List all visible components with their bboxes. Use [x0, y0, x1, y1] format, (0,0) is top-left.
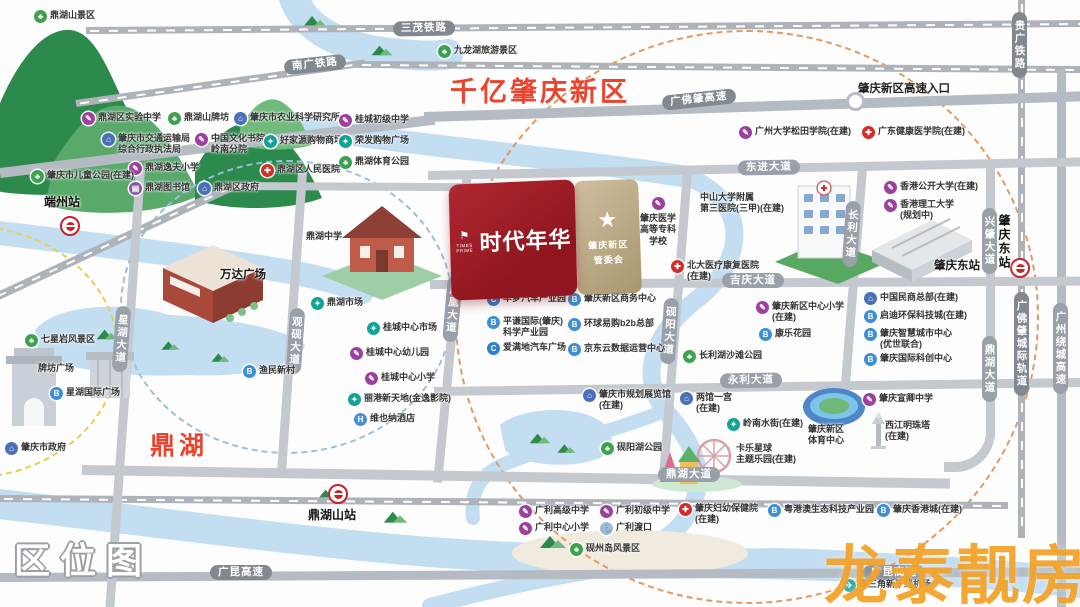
poi-school-58[interactable]: ✎广利高级中学 [519, 505, 589, 518]
poi-label: 九龙湖旅游景区 [454, 45, 517, 56]
hospital-icon: ✚ [671, 260, 684, 273]
location-map: 千亿肇庆新区 鼎湖 肇庆新区高速入口 区位图 ★ 肇庆新区 管委会 ⚑ TIME… [0, 0, 1080, 607]
poi-label: 肇庆市儿童公园(在建) [47, 170, 134, 181]
times-prime-logo: ⚑ TIMES PRIME [454, 231, 475, 254]
flag-icon: ⚑ [459, 231, 469, 242]
dinghushan-station-label: 鼎湖山站 [308, 506, 356, 523]
poi-shop-48[interactable]: ✦岭南水街(在建) [727, 418, 803, 431]
poi-car-42[interactable]: C爱满地汽车广场 [487, 342, 566, 355]
poi-gov-45[interactable]: ⌂肇庆市规划展览馆(在建) [583, 389, 671, 412]
park-icon: ♣ [339, 156, 352, 169]
school-icon: ✎ [884, 181, 897, 194]
poi-school-11[interactable]: ✎鼎湖逸夫小学 [129, 162, 199, 175]
poi-label: 肇庆智慧城市中心(优世联合) [880, 328, 952, 351]
poi-label: 牌坊广场 [38, 363, 74, 374]
shop-icon: ✦ [264, 135, 277, 148]
school-icon: ✎ [339, 114, 352, 127]
poi-business-40[interactable]: B平谦国际(肇庆)科学产业园 [487, 316, 563, 339]
school-icon: ✎ [652, 197, 665, 210]
poi-shop-9[interactable]: ✦荣发购物广场 [339, 135, 409, 148]
poi-school-59[interactable]: ✎广利初级中学 [600, 505, 670, 518]
poi-library-13[interactable]: ▤鼎湖图书馆 [129, 182, 190, 195]
poi-park-44[interactable]: ♣长利湖沙滩公园 [683, 350, 762, 363]
poi-label: 鼎湖区实验中学 [98, 112, 161, 123]
poi-business-64[interactable]: B粤港澳生态科技产业园 [768, 504, 874, 517]
label-dinghu: 鼎湖大道 [658, 467, 720, 482]
duanzhou-station-label: 端州站 [44, 193, 80, 210]
label-guangkun-west: 广昆高速 [210, 565, 272, 580]
business-icon: B [243, 365, 256, 378]
poi-label-20[interactable]: 中山大学附属第三医院(三甲)(在建) [700, 192, 784, 215]
poi-label: 鼎湖市场 [327, 297, 363, 308]
poi-label: 广利初级中学 [616, 505, 670, 516]
poi-hospital-21[interactable]: ✚北大医疗康复医院(在建) [671, 260, 759, 283]
poi-label: 香港公开大学(在建) [900, 181, 978, 192]
hotel-icon: H [354, 413, 367, 426]
poi-label: 长利湖沙滩公园 [699, 350, 762, 361]
property-banner[interactable]: ⚑ TIMES PRIME 时代年华 [449, 179, 578, 300]
poi-business-35[interactable]: B星湖国际广场 [50, 387, 120, 400]
poi-ferry-61[interactable]: ⚓广利渡口 [600, 522, 652, 535]
shop-icon: ✦ [727, 418, 740, 431]
poi-label: 渔民新村 [259, 365, 295, 376]
poi-label-50[interactable]: 肇庆新区体育中心 [808, 424, 844, 447]
poi-label: 广州大学松田学院(在建) [755, 126, 851, 137]
watermark: 龙泰靓房 [824, 525, 1080, 607]
poi-label-49[interactable]: 卡乐星球主题乐园(在建) [736, 443, 796, 466]
poi-school-28[interactable]: ✎桂城中心幼儿园 [350, 347, 429, 360]
poi-label: 砚阳湖公园 [617, 442, 662, 453]
poi-label: 中国民商总部(在建) [880, 292, 958, 303]
poi-label: 粤港澳生态科技产业园 [784, 504, 874, 515]
shop-icon: ✦ [348, 393, 361, 406]
poi-school-51[interactable]: ✎肇庆宣卿中学 [863, 393, 933, 406]
poi-school-16[interactable]: ✎广州大学松田学院(在建) [739, 126, 851, 139]
poi-label: 香港理工大学(规划中) [900, 199, 954, 222]
shop-icon: ✦ [311, 297, 324, 310]
school-icon: ✎ [884, 199, 897, 212]
dinghu-district-label: 鼎湖 [150, 426, 208, 462]
poi-label: 维也纳酒店 [370, 413, 415, 424]
business-icon: B [864, 328, 877, 341]
gov-icon: ⌂ [583, 389, 596, 402]
property-name: 时代年华 [479, 221, 572, 257]
poi-business-41[interactable]: B环球易购b2b总部 [568, 318, 654, 331]
times-prime-site[interactable]: ★ 肇庆新区 管委会 ⚑ TIMES PRIME 时代年华 [450, 176, 650, 304]
poi-hospital-63[interactable]: ✚肇庆妇幼保健院(在建) [679, 503, 758, 526]
poi-school-60[interactable]: ✎广利中心小学 [519, 522, 589, 535]
poi-school-2[interactable]: ✎鼎湖区实验中学 [82, 112, 161, 125]
poi-label: 北大医疗康复医院(在建) [687, 260, 759, 283]
poi-shop-8[interactable]: ✦好家源购物商场 [264, 135, 343, 148]
poi-school-22[interactable]: ✎肇庆新区中心小学(在建) [756, 301, 844, 324]
poi-park-0[interactable]: ♣鼎湖山景区 [34, 10, 95, 23]
poi-label: 肇庆妇幼保健院(在建) [695, 503, 758, 526]
poi-business-55[interactable]: B肇庆智慧城市中心(优世联合) [864, 328, 952, 351]
poi-school-29[interactable]: ✎桂城中心小学 [365, 372, 435, 385]
logo-text: TIMES PRIME [455, 243, 475, 254]
poi-label: 桂城中心幼儿园 [366, 347, 429, 358]
poi-gov-36[interactable]: ⌂肇庆市政府 [5, 442, 66, 455]
poi-label: 星湖国际广场 [66, 387, 120, 398]
park-icon: ♣ [25, 334, 38, 347]
business-icon: B [864, 353, 877, 366]
poi-label: 肇庆市交通运输局综合行政执法局 [118, 133, 190, 156]
poi-label: 启迪环保科技城(在建) [880, 310, 967, 321]
label-xingzhao: 兴肇大道 [982, 208, 997, 274]
business-icon: B [568, 343, 581, 356]
gov-icon: ⌂ [234, 112, 247, 125]
business-icon: B [768, 504, 781, 517]
poi-hospital-17[interactable]: ✚广东健康医学院(在建) [862, 126, 965, 139]
school-icon: ✎ [519, 522, 532, 535]
school-icon: ✎ [756, 301, 769, 314]
poi-label: 肇庆市农业科学研究所 [250, 112, 340, 123]
poi-label: 广东健康医学院(在建) [878, 126, 965, 137]
school-icon: ✎ [195, 133, 208, 146]
poi-label: 鼎湖山牌坊 [184, 112, 229, 123]
poi-label: 京东云数据运营中心 [584, 343, 665, 354]
label-gzring: 广州绕城高速 [1053, 303, 1068, 394]
poi-school-19[interactable]: ✎香港理工大学(规划中) [884, 199, 954, 222]
poi-school-5[interactable]: ✎桂城初级中学 [339, 114, 409, 127]
poi-business-32[interactable]: B渔民新村 [243, 365, 295, 378]
park-icon: ♣ [34, 10, 47, 23]
poi-business-54[interactable]: B启迪环保科技城(在建) [864, 310, 967, 323]
poi-label: 肇庆东站 [934, 259, 980, 273]
poi-label-34[interactable]: 牌坊广场 [38, 363, 74, 374]
mid-connector-road [228, 182, 476, 191]
poi-label: 肇庆宣卿中学 [879, 393, 933, 404]
poi-shop-27[interactable]: ✦桂城中心市场 [367, 322, 437, 335]
label-yongli: 永利大道 [720, 372, 782, 388]
poi-label: 爱满地汽车广场 [503, 342, 566, 353]
poi-label: 万达广场 [220, 268, 266, 282]
business-icon: B [50, 387, 63, 400]
poi-label-52[interactable]: 西江明珠塔(在建) [885, 420, 930, 443]
poi-label: 好家源购物商场 [280, 135, 343, 146]
poi-label-57[interactable]: 肇庆东站 [934, 259, 980, 273]
poi-school-7[interactable]: ✎中国文化书院岭南分院 [195, 133, 265, 156]
poi-label: 鼎湖山景区 [50, 10, 95, 21]
school-icon: ✎ [365, 372, 378, 385]
poi-park-10[interactable]: ♣鼎湖体育公园 [339, 156, 409, 169]
business-icon: B [487, 316, 500, 329]
poi-hospital-15[interactable]: ✚鼎湖区人民医院 [261, 164, 340, 177]
poi-label: 卡乐星球主题乐园(在建) [736, 443, 796, 466]
gov-icon: ⌂ [864, 292, 877, 305]
poi-label: 康乐花园 [775, 328, 811, 339]
poi-label: 肇庆市规划展览馆(在建) [599, 389, 671, 412]
poi-label: 桂城初级中学 [355, 114, 409, 125]
business-icon: B [864, 310, 877, 323]
star-icon: ★ [597, 208, 617, 231]
poi-label: 桂城中心小学 [381, 372, 435, 383]
park-icon: ♣ [570, 543, 583, 556]
poi-shop-26[interactable]: ✦鼎湖市场 [311, 297, 363, 310]
park-icon: ♣ [601, 442, 614, 455]
poi-gov-4[interactable]: ⌂肇庆市农业科学研究所 [234, 112, 340, 125]
poi-label: 荣发购物广场 [355, 135, 409, 146]
poi-label: 砚州岛风景区 [586, 543, 640, 554]
gov-icon: ⌂ [680, 392, 693, 405]
poi-label: 肇庆国际科创中心 [880, 353, 952, 364]
gov-icon: ⌂ [102, 133, 115, 146]
poi-label: 肇庆市政府 [21, 442, 66, 453]
management-committee-panel: ★ 肇庆新区 管委会 [574, 179, 642, 295]
poi-shop-30[interactable]: ✦丽港新天地(金逸影院) [348, 393, 451, 406]
poi-label: 中国文化书院岭南分院 [211, 133, 265, 156]
poi-label: 广利中心小学 [535, 522, 589, 533]
poi-park-33[interactable]: ♣七星岩风景区 [25, 334, 95, 347]
label-sanmao: 三茂铁路 [393, 20, 455, 36]
poi-gov-14[interactable]: ⌂鼎湖区政府 [198, 182, 259, 195]
school-icon: ✎ [739, 126, 752, 139]
dinghushan-station-icon[interactable] [328, 484, 348, 504]
school-icon: ✎ [600, 505, 613, 518]
poi-label: 中山大学附属第三医院(三甲)(在建) [700, 192, 784, 215]
park-icon: ♣ [438, 45, 451, 58]
committee-line: 肇庆新区 [588, 237, 628, 251]
poi-park-62[interactable]: ♣砚州岛风景区 [570, 543, 640, 556]
expressway-entrance-label: 肇庆新区高速入口 [858, 80, 950, 96]
park-icon: ♣ [683, 350, 696, 363]
car-icon: C [487, 342, 500, 355]
duanzhou-station-icon[interactable] [60, 216, 80, 236]
railway-logo [66, 222, 75, 231]
business-icon: B [759, 328, 772, 341]
poi-label: 环球易购b2b总部 [584, 318, 654, 329]
poi-hotel-31[interactable]: H维也纳酒店 [354, 413, 415, 426]
school-icon: ✎ [350, 347, 363, 360]
library-icon: ▤ [129, 182, 142, 195]
poi-label-25[interactable]: 万达广场 [220, 268, 266, 282]
hospital-icon: ✚ [679, 503, 692, 516]
business-icon: B [877, 504, 890, 517]
poi-label: 丽港新天地(金逸影院) [364, 393, 451, 404]
poi-label: 桂城中心市场 [383, 322, 437, 333]
poi-gov-47[interactable]: ⌂两馆一宫(在建) [680, 392, 732, 415]
gov-icon: ⌂ [198, 182, 211, 195]
school-icon: ✎ [519, 505, 532, 518]
poi-label: 七星岩风景区 [41, 334, 95, 345]
poi-label-24[interactable]: 鼎湖中学 [306, 231, 342, 242]
zhaoqingdong-station-icon[interactable] [1010, 258, 1030, 278]
sanmao-railway [86, 20, 1080, 34]
poi-business-56[interactable]: B肇庆国际科创中心 [864, 353, 952, 366]
new-district-headline: 千亿肇庆新区 [450, 70, 630, 109]
label-guiguang: 贵广铁路 [1012, 12, 1027, 78]
poi-label: 鼎湖区政府 [214, 182, 259, 193]
poi-gov-6[interactable]: ⌂肇庆市交通运输局综合行政执法局 [102, 133, 190, 156]
railway-logo [1016, 264, 1025, 273]
map-title: 区位图 [14, 532, 152, 584]
school-icon: ✎ [863, 393, 876, 406]
hospital-icon: ✚ [862, 126, 875, 139]
poi-label: 西江明珠塔(在建) [885, 420, 930, 443]
business-icon: B [568, 318, 581, 331]
poi-label: 鼎湖逸夫小学 [145, 162, 199, 173]
label-dongjin: 东进大道 [738, 159, 800, 175]
poi-business-43[interactable]: B京东云数据运营中心 [568, 343, 665, 356]
poi-park-1[interactable]: ♣九龙湖旅游景区 [438, 45, 517, 58]
poi-label: 岭南水街(在建) [743, 418, 803, 429]
gov-icon: ⌂ [5, 442, 18, 455]
poi-label: 鼎湖体育公园 [355, 156, 409, 167]
hospital-icon: ✚ [261, 164, 274, 177]
poi-label: 平谦国际(肇庆)科学产业园 [503, 316, 563, 339]
poi-park-46[interactable]: ♣砚阳湖公园 [601, 442, 662, 455]
poi-label: 广利高级中学 [535, 505, 589, 516]
poi-label: 鼎湖区人民医院 [277, 164, 340, 175]
shop-icon: ✦ [339, 135, 352, 148]
school-icon: ✎ [82, 112, 95, 125]
poi-label: 广利渡口 [616, 522, 652, 533]
ferry-icon: ⚓ [600, 522, 613, 535]
poi-park-3[interactable]: ♣鼎湖山牌坊 [168, 112, 229, 125]
poi-label: 肇庆新区中心小学(在建) [772, 301, 844, 324]
poi-label: 两馆一宫(在建) [696, 392, 732, 415]
poi-park-12[interactable]: ♣肇庆市儿童公园(在建) [31, 170, 134, 183]
poi-label: 鼎湖图书馆 [145, 182, 190, 193]
shop-icon: ✦ [367, 322, 380, 335]
poi-gov-53[interactable]: ⌂中国民商总部(在建) [864, 292, 958, 305]
poi-label: 鼎湖中学 [306, 231, 342, 242]
poi-label: 肇庆新区体育中心 [808, 424, 844, 447]
poi-business-23[interactable]: B康乐花园 [759, 328, 811, 341]
park-icon: ♣ [31, 170, 44, 183]
poi-school-18[interactable]: ✎香港公开大学(在建) [884, 181, 978, 194]
zhaoqingdong-station-label: 肇庆东站 [996, 214, 1013, 270]
poi-label: 肇庆香港城(在建) [893, 504, 962, 515]
committee-line: 管委会 [594, 252, 624, 266]
railway-logo [334, 490, 343, 499]
poi-business-65[interactable]: B肇庆香港城(在建) [877, 504, 962, 517]
park-icon: ♣ [168, 112, 181, 125]
label-dinghu-north: 鼎湖大道 [982, 336, 997, 402]
label-intercity: 广佛肇城际轨道 [1014, 292, 1029, 396]
